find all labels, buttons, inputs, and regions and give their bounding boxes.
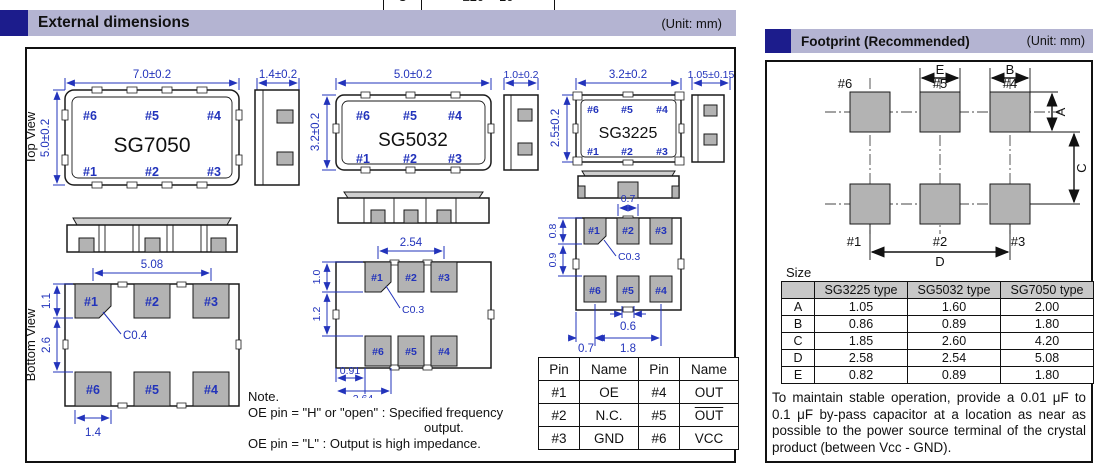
footprint-diagram: #6 #5 #4 #1 #2 #3 E B A C D xyxy=(770,62,1090,268)
sg3225-width-dim: 3.2±0.2 xyxy=(609,69,647,81)
sg7050-bv-label6: #6 xyxy=(86,383,100,397)
pin-header2: Pin xyxy=(639,358,680,381)
pin3-name: GND xyxy=(580,427,639,450)
sg7050-width-dim: 7.0±0.2 xyxy=(133,69,171,81)
sg5032-bv-label6: #6 xyxy=(372,346,384,358)
sg5032-front-view xyxy=(338,192,489,223)
external-unit-label: (Unit: mm) xyxy=(661,16,722,31)
size-c-sg7050: 4.20 xyxy=(1001,333,1094,350)
sg5032-side-view xyxy=(504,95,538,170)
size-header-sg3225: SG3225 type xyxy=(815,282,908,299)
name-header2: Name xyxy=(680,358,739,381)
note-line4: OE pin = "L" : Output is high impedance. xyxy=(248,436,538,452)
size-b-sg5032: 0.89 xyxy=(908,316,1001,333)
size-table: SG3225 type SG5032 type SG7050 type A 1.… xyxy=(781,281,1094,384)
pin4-name: OUT xyxy=(680,381,739,404)
pin-table-row: #3 GND #6 VCC xyxy=(539,427,739,450)
sg3225-pin5: #5 xyxy=(621,104,633,116)
sg3225-bv-chamfer: C0.3 xyxy=(618,251,640,263)
sg5032-bv-gap-dim: 1.2 xyxy=(311,307,323,322)
size-header-sg7050: SG7050 type xyxy=(1001,282,1094,299)
sg7050-pin3: #3 xyxy=(207,165,221,179)
sg3225-bv-gap-dim: 0.9 xyxy=(547,253,559,268)
sg7050-bottom-view: 5.08 #1 #2 #3 #6 #5 #4 1.1 2.6 C0.4 1.4 xyxy=(27,259,241,439)
sg7050-bv-label4: #4 xyxy=(204,383,218,397)
clipped-cell-label: C xyxy=(384,0,422,10)
sg3225-bv-notchtop-dim: 0.7 xyxy=(621,193,636,205)
sg7050-bv-pitch-dim: 5.08 xyxy=(141,259,163,271)
size-a-sg5032: 1.60 xyxy=(908,299,1001,316)
sg3225-bv-padh-dim: 0.8 xyxy=(547,224,559,239)
sg5032-bv-label4: #4 xyxy=(438,346,450,358)
fp-dim-c: C xyxy=(1074,163,1089,172)
pin1-num: #1 xyxy=(539,381,580,404)
sg7050-height-dim: 5.0±0.2 xyxy=(40,119,52,157)
size-a-sg3225: 1.05 xyxy=(815,299,908,316)
fp-dim-b: B xyxy=(1006,62,1015,77)
sg7050-pin4: #4 xyxy=(207,109,221,123)
pin4-num: #4 xyxy=(639,381,680,404)
sg7050-bv-padw-dim: 1.4 xyxy=(85,427,102,439)
size-row-d: D 2.58 2.54 5.08 xyxy=(782,350,1094,367)
size-e-sg5032: 0.89 xyxy=(908,367,1001,384)
pin-table-row: #1 OE #4 OUT xyxy=(539,381,739,404)
sg5032-bv-padh-dim: 1.0 xyxy=(311,270,323,285)
sg5032-pin5: #5 xyxy=(403,109,417,123)
bypass-capacitor-note: To maintain stable operation, provide a … xyxy=(772,390,1086,456)
sg7050-bv-padh-dim: 1.1 xyxy=(41,293,53,309)
name-header: Name xyxy=(580,358,639,381)
footprint-unit-label: (Unit: mm) xyxy=(1027,34,1085,48)
sg7050-name: SG7050 xyxy=(113,134,190,157)
oe-pin-note: Note. OE pin = "H" or "open" : Specified… xyxy=(248,389,538,451)
size-table-label: Size xyxy=(786,265,811,280)
size-c-sg5032: 2.60 xyxy=(908,333,1001,350)
note-line1: Note. xyxy=(248,389,538,405)
size-e-sg7050: 1.80 xyxy=(1001,367,1094,384)
size-header-sg5032: SG5032 type xyxy=(908,282,1001,299)
footprint-header-bar: Footprint (Recommended) (Unit: mm) xyxy=(765,29,1093,53)
pin-table: Pin Name Pin Name #1 OE #4 OUT #2 N.C. #… xyxy=(538,357,739,450)
size-e-label: E xyxy=(782,367,815,384)
external-dimensions-title: External dimensions xyxy=(38,14,190,32)
size-d-sg7050: 5.08 xyxy=(1001,350,1094,367)
sg5032-name: SG5032 xyxy=(378,130,448,151)
sg3225-bv-label6: #6 xyxy=(589,285,601,297)
size-row-b: B 0.86 0.89 1.80 xyxy=(782,316,1094,333)
sg5032-pin1: #1 xyxy=(356,152,370,166)
fp-label1: #1 xyxy=(847,234,861,249)
sg7050-bv-chamfer: C0.4 xyxy=(123,330,148,342)
sg7050-front-view xyxy=(67,218,237,252)
sg5032-bv-chamfer: C0.3 xyxy=(402,304,424,316)
sg3225-bv-dleft-dim: 0.7 xyxy=(578,343,594,355)
size-c-sg3225: 1.85 xyxy=(815,333,908,350)
sg3225-bottom-view: 0.7 #1 #2 #3 #6 #5 #4 0.8 0.9 C0.3 xyxy=(547,193,684,355)
sg3225-pin3: #3 xyxy=(656,146,668,158)
sg7050-bv-gap-dim: 2.6 xyxy=(41,337,53,353)
sg3225-bv-label5: #5 xyxy=(622,285,634,297)
fp-dim-e: E xyxy=(936,62,945,77)
sg7050-drawing: 7.0±0.2 1.4±0.2 5.0±0.2 Top View #6 #5 #… xyxy=(27,50,309,442)
sg7050-bv-label3: #3 xyxy=(204,295,218,309)
fp-pad1 xyxy=(850,184,890,224)
fp-label3: #3 xyxy=(1011,234,1025,249)
pin6-name: VCC xyxy=(680,427,739,450)
sg5032-bv-pitch-dim: 2.54 xyxy=(400,237,423,249)
sg5032-bv-label3: #3 xyxy=(438,272,450,284)
size-b-label: B xyxy=(782,316,815,333)
note-line3: output. xyxy=(424,420,538,436)
pin-header: Pin xyxy=(539,358,580,381)
fp-pad4 xyxy=(990,92,1030,132)
size-row-c: C 1.85 2.60 4.20 xyxy=(782,333,1094,350)
size-e-sg3225: 0.82 xyxy=(815,367,908,384)
pin6-num: #6 xyxy=(639,427,680,450)
sg3225-pin6: #6 xyxy=(587,104,599,116)
sg3225-height-dim: 2.5±0.2 xyxy=(550,109,562,147)
clipped-cell-value: ±20 × 10 xyxy=(422,0,554,10)
sg7050-bv-label5: #5 xyxy=(145,383,159,397)
size-table-header-row: SG3225 type SG5032 type SG7050 type xyxy=(782,282,1094,299)
footprint-title: Footprint (Recommended) xyxy=(801,34,970,49)
sg5032-bottom-view: 2.54 #1 #2 #3 #6 #5 #4 1.0 1.2 C0.3 0.91 xyxy=(311,237,494,398)
sg3225-pin1: #1 xyxy=(587,146,599,158)
size-d-label: D xyxy=(782,350,815,367)
pin2-name: N.C. xyxy=(580,404,639,427)
sg5032-pin4: #4 xyxy=(448,109,462,123)
sg5032-drawing: 5.0±0.2 1.0±0.2 3.2±0.2 #6 #5 #4 #1 #2 #… xyxy=(306,50,544,398)
sg7050-pin1: #1 xyxy=(83,165,97,179)
sg7050-side-view xyxy=(255,90,299,185)
fp-pad2 xyxy=(920,184,960,224)
size-b-sg7050: 1.80 xyxy=(1001,316,1094,333)
sg3225-bv-label2: #2 xyxy=(622,225,634,237)
sg3225-side-view xyxy=(692,95,724,162)
pin5-num: #5 xyxy=(639,404,680,427)
size-b-sg3225: 0.86 xyxy=(815,316,908,333)
external-dimensions-header-bar: External dimensions (Unit: mm) xyxy=(0,10,736,36)
fp-label2: #2 xyxy=(933,234,947,249)
sg5032-pin3: #3 xyxy=(448,152,462,166)
size-d-sg5032: 2.54 xyxy=(908,350,1001,367)
pin1-name: OE xyxy=(580,381,639,404)
fp-dim-d: D xyxy=(935,254,944,268)
sg7050-bv-label2: #2 xyxy=(145,295,159,309)
sg7050-pin6: #6 xyxy=(83,109,97,123)
sg5032-bv-label2: #2 xyxy=(405,272,417,284)
pin3-num: #3 xyxy=(539,427,580,450)
datasheet-page: C ±20 × 10 External dimensions (Unit: mm… xyxy=(0,0,1111,465)
size-a-label: A xyxy=(782,299,815,316)
size-d-sg3225: 2.58 xyxy=(815,350,908,367)
size-header-blank xyxy=(782,282,815,299)
sg5032-width-dim: 5.0±0.2 xyxy=(394,69,432,81)
sg3225-bv-label4: #4 xyxy=(655,285,667,297)
sg5032-height-dim: 3.2±0.2 xyxy=(310,113,322,151)
sg5032-pin6: #6 xyxy=(356,109,370,123)
sg3225-pin4: #4 xyxy=(656,104,668,116)
size-c-label: C xyxy=(782,333,815,350)
sg5032-bv-label5: #5 xyxy=(405,346,417,358)
fp-pad6 xyxy=(850,92,890,132)
section-marker-square xyxy=(0,10,28,36)
sg3225-name: SG3225 xyxy=(599,125,658,142)
sg5032-pin2: #2 xyxy=(403,152,417,166)
clipped-table-row: C ±20 × 10 xyxy=(383,0,555,10)
sg3225-bv-label3: #3 xyxy=(655,225,667,237)
sg7050-pin2: #2 xyxy=(145,165,159,179)
clipped-table-fragment: C ±20 × 10 xyxy=(383,0,555,10)
sg3225-side-dim: 1.05±0.15 xyxy=(688,69,735,81)
fp-pad5 xyxy=(920,92,960,132)
pin5-name-inverted-out: OUT xyxy=(680,404,739,427)
sg5032-bv-d1-dim: 0.91 xyxy=(340,365,361,377)
sg3225-bv-notchbot-dim: 0.6 xyxy=(620,321,636,333)
top-view-label: Top View xyxy=(27,111,38,164)
note-line2: OE pin = "H" or "open" : Specified frequ… xyxy=(248,405,538,421)
sg5032-side-dim: 1.0±0.2 xyxy=(504,69,539,81)
fp-label6: #6 xyxy=(838,76,852,91)
size-row-a: A 1.05 1.60 2.00 xyxy=(782,299,1094,316)
sg3225-drawing: 3.2±0.2 1.05±0.15 2.5±0.2 #6 #5 #4 #1 #2… xyxy=(546,50,742,362)
pin2-num: #2 xyxy=(539,404,580,427)
pin-table-header-row: Pin Name Pin Name xyxy=(539,358,739,381)
sg5032-bv-label1: #1 xyxy=(371,272,383,284)
sg3225-bv-label1: #1 xyxy=(588,225,600,237)
pin-table-row: #2 N.C. #5 OUT xyxy=(539,404,739,427)
fp-pad3 xyxy=(990,184,1030,224)
footprint-marker-square xyxy=(765,29,791,53)
bottom-view-label: Bottom View xyxy=(27,308,38,381)
size-row-e: E 0.82 0.89 1.80 xyxy=(782,367,1094,384)
sg7050-side-dim: 1.4±0.2 xyxy=(259,69,297,81)
fp-dim-a: A xyxy=(1053,107,1068,116)
sg3225-pin2: #2 xyxy=(621,146,633,158)
sg3225-bv-dright-dim: 1.8 xyxy=(620,343,636,355)
sg7050-pin5: #5 xyxy=(145,109,159,123)
sg7050-bv-label1: #1 xyxy=(84,295,98,309)
size-a-sg7050: 2.00 xyxy=(1001,299,1094,316)
